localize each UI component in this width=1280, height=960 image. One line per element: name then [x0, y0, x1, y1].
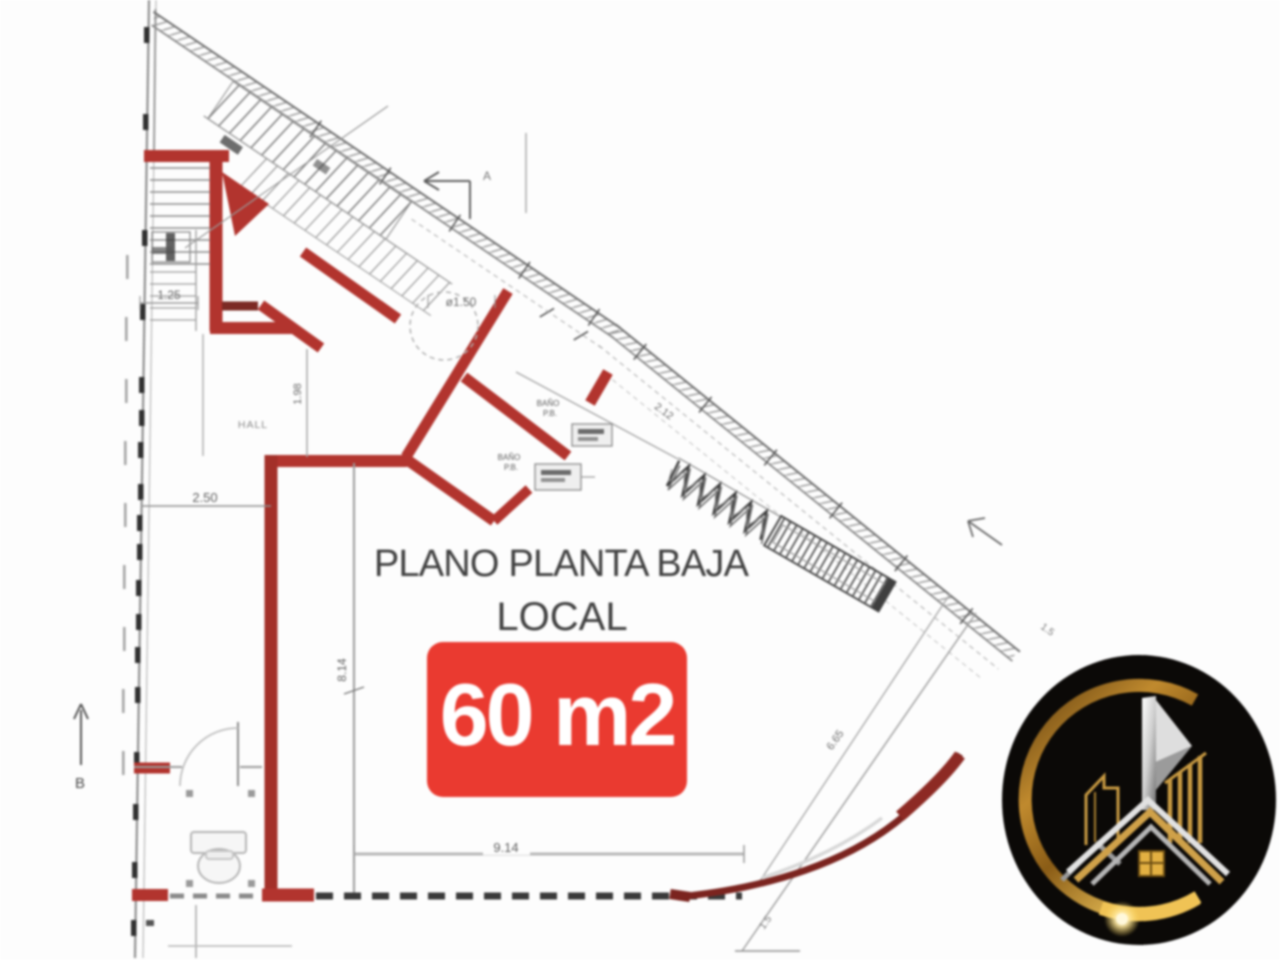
- svg-text:2.50: 2.50: [192, 490, 217, 505]
- svg-text:A: A: [483, 169, 491, 183]
- svg-text:1.25: 1.25: [157, 288, 181, 302]
- svg-text:LOCAL: LOCAL: [496, 595, 627, 639]
- svg-text:P.B.: P.B.: [543, 409, 557, 418]
- svg-text:ø1.50: ø1.50: [446, 295, 477, 309]
- svg-text:BAÑO: BAÑO: [537, 399, 560, 408]
- svg-text:60 m2: 60 m2: [440, 665, 675, 764]
- svg-text:HALL: HALL: [238, 419, 268, 431]
- svg-text:B: B: [75, 775, 85, 792]
- svg-text:PLANO PLANTA BAJA: PLANO PLANTA BAJA: [374, 543, 750, 585]
- svg-text:BAÑO: BAÑO: [498, 453, 521, 462]
- svg-text:P.B.: P.B.: [504, 463, 518, 472]
- svg-text:9.14: 9.14: [493, 840, 518, 855]
- svg-text:8.14: 8.14: [335, 658, 349, 682]
- svg-text:1.98: 1.98: [292, 383, 304, 404]
